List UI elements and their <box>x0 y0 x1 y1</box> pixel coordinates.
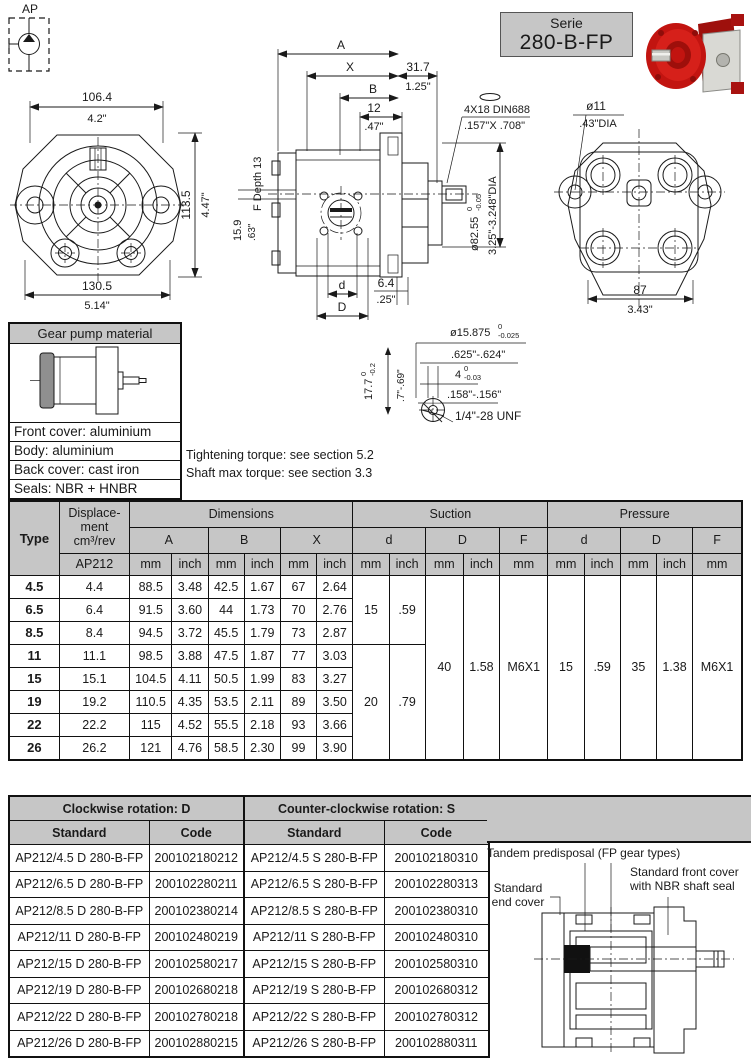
unit-mm: mm <box>130 553 172 575</box>
pilot-dia-mm: ø82.55 <box>469 217 481 251</box>
datasheet-page: { "header": { "ap_label": "AP", "serie_l… <box>0 0 751 1064</box>
b-mm: 44 <box>208 598 244 621</box>
cw-code: 200102680218 <box>149 977 244 1004</box>
group-dimensions: Dimensions <box>130 501 353 527</box>
dim-x-label: X <box>346 60 354 74</box>
unit-mm: mm <box>548 553 584 575</box>
col-pressure-D: D <box>620 527 692 553</box>
dim-317-mm: 31.7 <box>406 60 430 74</box>
type-cell: 8.5 <box>9 621 59 644</box>
disp-cell: 19.2 <box>59 690 129 713</box>
shaft-detail-drawing: ø15.875 0 -0.025 .625"-.624" 4 0 -0.03 .… <box>358 318 586 433</box>
front-view-outline <box>10 135 188 281</box>
x-mm: 67 <box>280 575 316 598</box>
unit-mm: mm <box>500 553 548 575</box>
front-view-drawing: 106.4 4.2" 113.5 <box>10 85 245 315</box>
a-mm: 94.5 <box>130 621 172 644</box>
order-row: AP212/4.5 D 280-B-FP 200102180212 AP212/… <box>9 845 489 872</box>
b-in: 1.73 <box>244 598 280 621</box>
back-view-outline <box>554 129 725 307</box>
unit-mm: mm <box>353 553 389 575</box>
material-body: Body: aluminium <box>10 441 180 460</box>
cw-code: 200102180212 <box>149 845 244 872</box>
unit-mm: mm <box>425 553 463 575</box>
ap-symbol-label: AP <box>22 2 38 16</box>
disp-cell: 4.4 <box>59 575 129 598</box>
cw-standard: AP212/15 D 280-B-FP <box>9 951 149 978</box>
order-row: AP212/26 D 280-B-FP 200102880215 AP212/2… <box>9 1030 489 1057</box>
b-in: 2.18 <box>244 713 280 736</box>
key-width-in: .158"-.156" <box>447 389 501 401</box>
a-mm: 121 <box>130 736 172 760</box>
x-mm: 73 <box>280 621 316 644</box>
suction-d-in-group2: .79 <box>389 644 425 760</box>
type-cell: 11 <box>9 644 59 667</box>
unit-inch: inch <box>584 553 620 575</box>
dim-b-label: B <box>369 82 377 96</box>
header-standard: Standard <box>244 821 384 845</box>
x-in: 2.87 <box>317 621 353 644</box>
x-mm: 93 <box>280 713 316 736</box>
a-mm: 98.5 <box>130 644 172 667</box>
cw-standard: AP212/6.5 D 280-B-FP <box>9 871 149 898</box>
material-back-cover: Back cover: cast iron <box>10 460 180 479</box>
header-code: Code <box>149 821 244 845</box>
shaft-height-tol-top: 0 <box>359 372 368 376</box>
x-mm: 70 <box>280 598 316 621</box>
suction-d-mm-group1: 15 <box>353 575 389 644</box>
key-width-mm: 4 <box>455 369 461 381</box>
cw-standard: AP212/22 D 280-B-FP <box>9 1004 149 1031</box>
header-standard: Standard <box>9 821 149 845</box>
front-height-mm: 113.5 <box>179 190 193 219</box>
type-cell: 26 <box>9 736 59 760</box>
unit-mm: mm <box>208 553 244 575</box>
material-front-cover: Front cover: aluminium <box>10 422 180 441</box>
cw-standard: AP212/26 D 280-B-FP <box>9 1030 149 1057</box>
pressure-d-in: .59 <box>584 575 620 760</box>
ccw-code: 200102780312 <box>384 1004 489 1031</box>
ccw-code: 200102380310 <box>384 898 489 925</box>
col-suction-d: d <box>353 527 425 553</box>
dim-317-in: 1.25" <box>405 81 430 93</box>
b-in: 2.11 <box>244 690 280 713</box>
dim-12-mm: 12 <box>367 101 381 115</box>
x-in: 2.64 <box>317 575 353 598</box>
ccw-standard: AP212/11 S 280-B-FP <box>244 924 384 951</box>
unit-inch: inch <box>389 553 425 575</box>
x-mm: 89 <box>280 690 316 713</box>
col-b: B <box>208 527 280 553</box>
side-view-outline <box>268 133 478 277</box>
a-mm: 88.5 <box>130 575 172 598</box>
x-in: 3.50 <box>317 690 353 713</box>
ccw-standard: AP212/22 S 280-B-FP <box>244 1004 384 1031</box>
order-row: AP212/8.5 D 280-B-FP 200102380214 AP212/… <box>9 898 489 925</box>
order-row: AP212/19 D 280-B-FP 200102680218 AP212/1… <box>9 977 489 1004</box>
shaft-height-mm: 17.7 <box>363 379 375 400</box>
spec-row: 4.5 4.4 88.5 3.48 42.5 1.67 67 2.64 15 .… <box>9 575 742 598</box>
col-displacement: Displace- ment cm³/rev <box>59 501 129 553</box>
port-offset-mm: 15.9 <box>232 220 244 241</box>
key-width-tol-top: 0 <box>464 364 468 373</box>
header-code: Code <box>384 821 489 845</box>
group-pressure: Pressure <box>548 501 742 527</box>
material-box-title: Gear pump material <box>10 324 180 344</box>
suction-f: M6X1 <box>500 575 548 760</box>
unit-inch: inch <box>656 553 692 575</box>
cw-code: 200102480219 <box>149 924 244 951</box>
x-in: 3.66 <box>317 713 353 736</box>
dim-64-mm: 6.4 <box>378 276 395 290</box>
dim-d-big: D <box>338 300 347 314</box>
dim-12-in: .47" <box>364 121 383 133</box>
a-mm: 110.5 <box>130 690 172 713</box>
disp-cell: 22.2 <box>59 713 129 736</box>
b-in: 1.99 <box>244 667 280 690</box>
ap-hydraulic-symbol: AP <box>6 0 76 80</box>
suction-d-in-group1: .59 <box>389 575 425 644</box>
pressure-D-mm: 35 <box>620 575 656 760</box>
shaft-height-in: .7"-.69" <box>396 369 407 402</box>
pressure-D-in: 1.38 <box>656 575 692 760</box>
cw-code: 200102880215 <box>149 1030 244 1057</box>
header-cw: Clockwise rotation: D <box>9 796 244 821</box>
b-in: 1.67 <box>244 575 280 598</box>
ccw-code: 200102580310 <box>384 951 489 978</box>
unit-inch: inch <box>244 553 280 575</box>
unit-mm: mm <box>280 553 316 575</box>
disp-cell: 11.1 <box>59 644 129 667</box>
b-mm: 53.5 <box>208 690 244 713</box>
cw-standard: AP212/8.5 D 280-B-FP <box>9 898 149 925</box>
cw-standard: AP212/19 D 280-B-FP <box>9 977 149 1004</box>
cw-code: 200102580217 <box>149 951 244 978</box>
cw-code: 200102280211 <box>149 871 244 898</box>
order-row: AP212/6.5 D 280-B-FP 200102280211 AP212/… <box>9 871 489 898</box>
col-a: A <box>130 527 208 553</box>
a-in: 4.35 <box>172 690 208 713</box>
dim-a-label: A <box>337 38 345 52</box>
disp-cell: 6.4 <box>59 598 129 621</box>
pressure-d-mm: 15 <box>548 575 584 760</box>
ccw-standard: AP212/4.5 S 280-B-FP <box>244 845 384 872</box>
b-in: 1.79 <box>244 621 280 644</box>
f-depth-label: F Depth 13 <box>252 157 264 211</box>
col-pressure-f: F <box>693 527 742 553</box>
a-in: 4.11 <box>172 667 208 690</box>
thread-spec: 1/4"-28 UNF <box>455 409 521 423</box>
x-mm: 77 <box>280 644 316 667</box>
ccw-standard: AP212/15 S 280-B-FP <box>244 951 384 978</box>
key-spec-label: 4X18 DIN6885 <box>464 104 530 116</box>
pressure-f: M6X1 <box>693 575 742 760</box>
x-in: 3.27 <box>317 667 353 690</box>
a-in: 3.48 <box>172 575 208 598</box>
displacement-l2: ment <box>81 520 109 534</box>
pilot-dia-tol-bot: -0.05 <box>474 194 483 211</box>
unit-inch: inch <box>463 553 499 575</box>
shaft-dia-mm: ø15.875 <box>450 327 490 339</box>
note-tightening-torque: Tightening torque: see section 5.2 <box>186 448 374 462</box>
ccw-code: 200102280313 <box>384 871 489 898</box>
suction-D-in: 1.58 <box>463 575 499 760</box>
key-spec-inch: .157"X .708" <box>464 120 525 132</box>
order-row: AP212/22 D 280-B-FP 200102780218 AP212/2… <box>9 1004 489 1031</box>
col-ap212: AP212 <box>59 553 129 575</box>
pilot-dia-in: 3.25"-3.248"DIA <box>487 176 499 255</box>
ccw-code: 200102480310 <box>384 924 489 951</box>
series-title: Serie <box>501 15 632 31</box>
front-width-mm: 106.4 <box>82 90 112 104</box>
order-row: AP212/11 D 280-B-FP 200102480219 AP212/1… <box>9 924 489 951</box>
pilot-dia-tol-top: 0 <box>465 207 474 211</box>
col-x: X <box>280 527 352 553</box>
b-mm: 42.5 <box>208 575 244 598</box>
type-cell: 15 <box>9 667 59 690</box>
key-width-tol-bot: -0.03 <box>464 373 481 382</box>
disp-cell: 8.4 <box>59 621 129 644</box>
suction-D-mm: 40 <box>425 575 463 760</box>
col-type: Type <box>9 501 59 575</box>
cw-standard: AP212/11 D 280-B-FP <box>9 924 149 951</box>
x-in: 2.76 <box>317 598 353 621</box>
cross-section-drawing <box>486 845 751 1064</box>
port-offset-in: .63" <box>247 223 258 241</box>
ccw-standard: AP212/19 S 280-B-FP <box>244 977 384 1004</box>
ccw-code: 200102880311 <box>384 1030 489 1057</box>
ccw-code: 200102180310 <box>384 845 489 872</box>
displacement-l1: Displace- <box>68 506 120 520</box>
type-cell: 19 <box>9 690 59 713</box>
a-in: 3.60 <box>172 598 208 621</box>
x-in: 3.03 <box>317 644 353 667</box>
unit-inch: inch <box>317 553 353 575</box>
order-table: Clockwise rotation: D Counter-clockwise … <box>8 795 490 1058</box>
a-in: 3.72 <box>172 621 208 644</box>
b-in: 2.30 <box>244 736 280 760</box>
unit-mm: mm <box>693 553 742 575</box>
material-seals: Seals: NBR + HNBR <box>10 479 180 498</box>
b-mm: 50.5 <box>208 667 244 690</box>
ccw-standard: AP212/6.5 S 280-B-FP <box>244 871 384 898</box>
a-mm: 115 <box>130 713 172 736</box>
shaft-dia-tol-bot: -0.025 <box>498 331 519 340</box>
b-mm: 47.5 <box>208 644 244 667</box>
a-in: 3.88 <box>172 644 208 667</box>
x-in: 3.90 <box>317 736 353 760</box>
b-mm: 58.5 <box>208 736 244 760</box>
group-suction: Suction <box>353 501 548 527</box>
shaft-dia-in: .625"-.624" <box>451 349 505 361</box>
col-suction-f: F <box>500 527 548 553</box>
side-view-drawing: A X 31.7 1.25" B 12 .47" 4X18 DIN6885 .1… <box>228 33 530 323</box>
b-mm: 55.5 <box>208 713 244 736</box>
ccw-standard: AP212/8.5 S 280-B-FP <box>244 898 384 925</box>
a-in: 4.76 <box>172 736 208 760</box>
cw-standard: AP212/4.5 D 280-B-FP <box>9 845 149 872</box>
x-mm: 99 <box>280 736 316 760</box>
unit-mm: mm <box>620 553 656 575</box>
a-in: 4.52 <box>172 713 208 736</box>
shaft-height-tol-bot: -0.2 <box>368 363 377 376</box>
back-view-drawing: ø11 .43"DIA 87 3.43" <box>528 95 751 320</box>
note-shaft-torque: Shaft max torque: see section 3.3 <box>186 466 372 480</box>
cw-code: 200102380214 <box>149 898 244 925</box>
b-mm: 45.5 <box>208 621 244 644</box>
a-mm: 104.5 <box>130 667 172 690</box>
b-in: 1.87 <box>244 644 280 667</box>
x-mm: 83 <box>280 667 316 690</box>
shaft-section <box>419 396 447 424</box>
spec-table: Type Displace- ment cm³/rev Dimensions S… <box>8 500 743 761</box>
material-pump-icon <box>10 344 176 417</box>
dim-d-small: d <box>339 278 346 292</box>
col-pressure-d: d <box>548 527 620 553</box>
front-width-in: 4.2" <box>87 113 106 125</box>
type-cell: 6.5 <box>9 598 59 621</box>
type-cell: 22 <box>9 713 59 736</box>
a-mm: 91.5 <box>130 598 172 621</box>
dim-64-in: .25" <box>376 294 395 306</box>
header-ccw: Counter-clockwise rotation: S <box>244 796 489 821</box>
front-height-in: 4.47" <box>200 192 212 217</box>
front-bolt-in: 5.14" <box>84 300 109 312</box>
product-photo-gear-pump <box>643 8 748 100</box>
suction-d-mm-group2: 20 <box>353 644 389 760</box>
back-width-mm: 87 <box>633 283 647 297</box>
ccw-standard: AP212/26 S 280-B-FP <box>244 1030 384 1057</box>
front-bolt-mm: 130.5 <box>82 279 112 293</box>
unit-inch: inch <box>172 553 208 575</box>
gray-band <box>487 795 751 843</box>
type-cell: 4.5 <box>9 575 59 598</box>
disp-cell: 26.2 <box>59 736 129 760</box>
displacement-l3: cm³/rev <box>74 534 116 548</box>
back-width-in: 3.43" <box>627 304 652 316</box>
cross-section-body <box>534 907 734 1055</box>
bolt-hole-dia: ø11 <box>586 99 606 113</box>
ccw-code: 200102680312 <box>384 977 489 1004</box>
cw-code: 200102780218 <box>149 1004 244 1031</box>
disp-cell: 15.1 <box>59 667 129 690</box>
shaft-dia-tol-top: 0 <box>498 322 502 331</box>
order-row: AP212/15 D 280-B-FP 200102580217 AP212/1… <box>9 951 489 978</box>
material-box: Gear pump material Front cover: aluminiu… <box>8 322 182 500</box>
col-suction-D: D <box>425 527 499 553</box>
